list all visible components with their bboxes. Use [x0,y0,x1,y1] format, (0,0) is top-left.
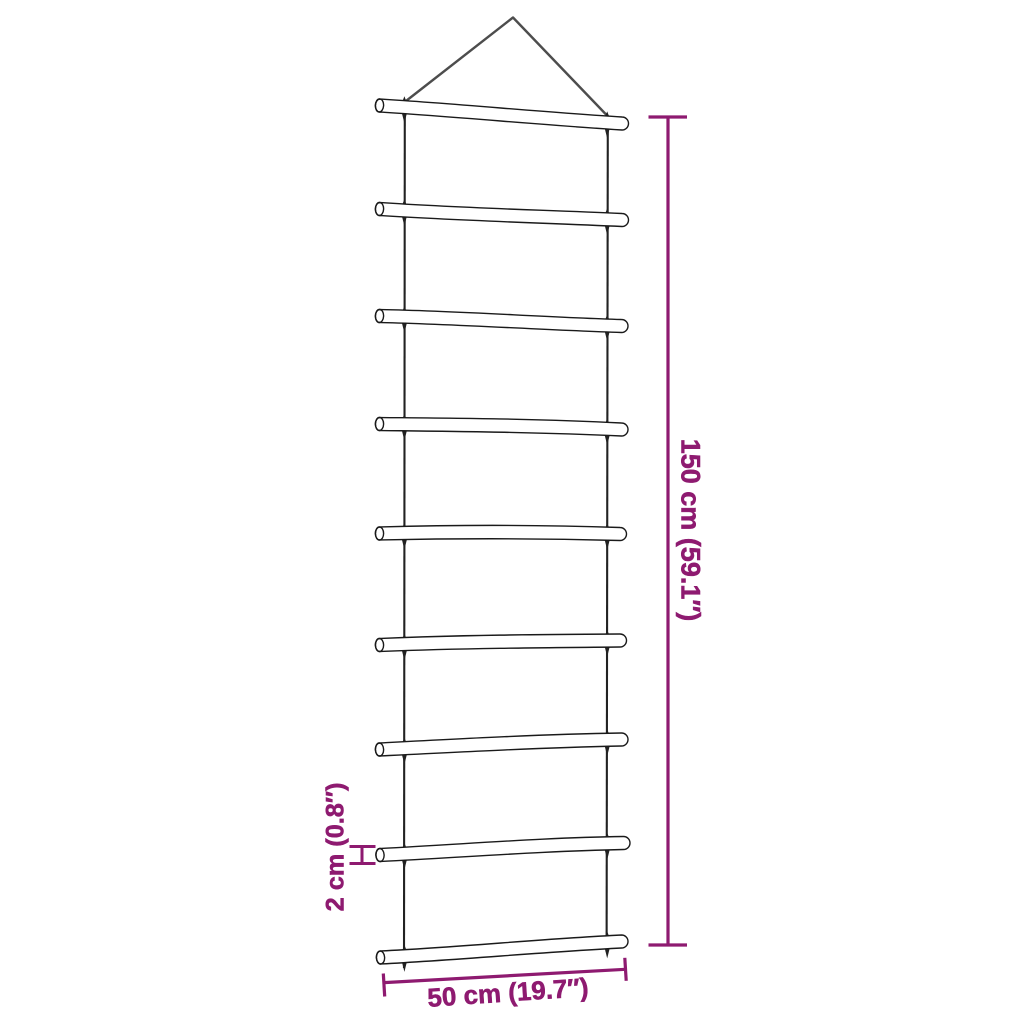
svg-text:150 cm (59.1″): 150 cm (59.1″) [676,439,706,622]
svg-text:2 cm (0.8″): 2 cm (0.8″) [322,783,350,912]
